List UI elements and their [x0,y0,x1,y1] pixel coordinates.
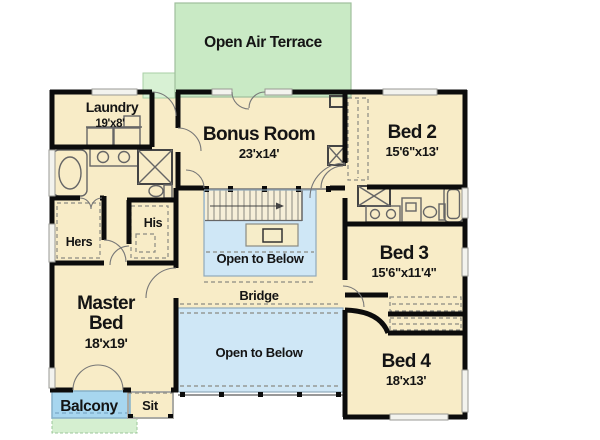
floor-plan: Open Air Terrace Laundry 19'x8' Bonus Ro… [0,0,600,440]
sit-label: Sit [142,398,159,413]
laundry-dims: 19'x8' [95,118,125,130]
bed2-dims: 15'6"x13' [385,144,438,159]
bonus-dims: 23'x14' [239,146,279,161]
bed3-dims: 15'6"x11'4" [371,265,436,280]
hers-label: Hers [66,235,93,249]
bed2-label: Bed 2 [388,122,437,143]
his-label: His [144,216,163,230]
balcony-label: Balcony [60,398,118,415]
bed3-label: Bed 3 [380,243,429,264]
bridge-label: Bridge [239,288,278,303]
porch-below [52,417,137,433]
laundry-label: Laundry [86,99,139,115]
master-dims: 18'x19' [85,335,128,351]
open-below-upper-label: Open to Below [216,251,304,266]
bed4-dims: 18'x13' [386,373,426,388]
master-label-1: Master [77,293,136,314]
terrace-label: Open Air Terrace [204,34,322,51]
master-label-2: Bed [89,313,123,334]
bed4-label: Bed 4 [382,351,432,372]
bonus-label: Bonus Room [203,124,315,145]
floor-plan-drawing: Open Air Terrace Laundry 19'x8' Bonus Ro… [0,0,600,440]
open-below-lower-label: Open to Below [215,345,303,360]
